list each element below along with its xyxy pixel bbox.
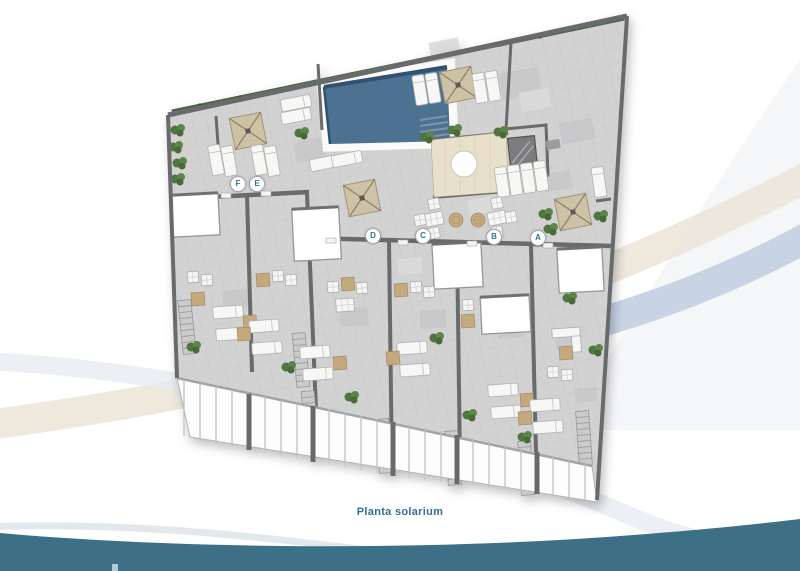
pool xyxy=(316,58,459,152)
logo-mark xyxy=(112,564,118,571)
parasol-icon xyxy=(554,193,592,231)
lounge-chair xyxy=(201,274,213,286)
parasol-icon xyxy=(439,66,477,104)
sun-lounger xyxy=(533,420,564,434)
sun-lounger xyxy=(397,341,428,355)
lounge-chair xyxy=(410,281,422,293)
lounge-chair xyxy=(356,282,368,294)
unit-marker-f: F xyxy=(230,176,246,192)
side-table xyxy=(333,356,347,370)
lounge-chair xyxy=(187,271,199,283)
round-table xyxy=(471,213,485,227)
lounge-chair xyxy=(423,286,435,298)
sun-lounger xyxy=(491,405,522,419)
unit-marker-d: D xyxy=(365,228,381,244)
lounge-chair xyxy=(561,369,573,381)
side-table xyxy=(394,283,408,297)
side-table xyxy=(559,346,573,360)
sun-lounger xyxy=(252,341,283,355)
side-table xyxy=(237,327,251,341)
skylight xyxy=(171,193,220,237)
brochure-page: F E D C B A Planta solarium xyxy=(0,0,800,571)
lounge-chair xyxy=(505,211,518,224)
lounge-chair xyxy=(414,214,427,227)
lounge-chair xyxy=(285,274,297,286)
sofa xyxy=(571,336,581,353)
skylight xyxy=(480,295,531,335)
plan-caption: Planta solarium xyxy=(357,506,443,518)
lounge-chair xyxy=(547,366,559,378)
parasol-icon xyxy=(343,179,381,217)
sun-lounger xyxy=(488,383,519,397)
lounge-chair xyxy=(462,299,474,311)
side-table xyxy=(341,277,355,291)
sun-lounger xyxy=(530,398,561,412)
sun-lounger xyxy=(300,345,331,359)
lounge-chair xyxy=(272,270,284,282)
side-table xyxy=(256,273,270,287)
sun-lounger xyxy=(400,363,431,377)
sun-lounger xyxy=(303,367,334,381)
skylight xyxy=(292,207,342,261)
unit-marker-c: C xyxy=(415,228,431,244)
side-table xyxy=(191,292,205,306)
unit-marker-b: B xyxy=(486,229,502,245)
bar-counter xyxy=(451,151,477,177)
lounge-chair xyxy=(491,197,504,210)
skylight xyxy=(557,247,604,293)
sun-lounger xyxy=(213,305,244,319)
floorplan-graphic xyxy=(0,0,800,571)
round-table xyxy=(449,213,463,227)
lounge-chair xyxy=(327,281,339,293)
side-table xyxy=(518,411,532,425)
skylight xyxy=(432,242,483,290)
side-table xyxy=(461,314,475,328)
dining-table xyxy=(336,298,355,312)
floorplan xyxy=(168,16,627,502)
lounge-chair xyxy=(428,198,441,211)
unit-marker-a: A xyxy=(530,230,546,246)
unit-marker-e: E xyxy=(249,176,265,192)
sun-lounger xyxy=(249,319,280,333)
side-table xyxy=(386,351,400,365)
